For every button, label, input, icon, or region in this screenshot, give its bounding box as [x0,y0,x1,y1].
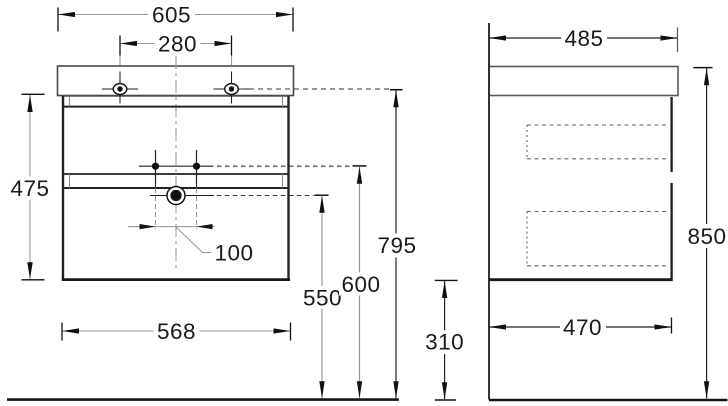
technical-drawing-canvas: 605 280 475 [0,0,728,406]
dim-supply-height-label: 600 [341,272,380,297]
supply-hole-right [193,163,200,170]
side-view: 485 850 470 310 [424,23,728,400]
dim-top-depth-label: 485 [564,26,603,51]
dim-top-depth: 485 [489,26,678,52]
leader-line [176,227,211,253]
dim-drain-height-label: 550 [303,285,342,310]
washbasin-top-side [489,67,678,96]
dim-washbasin-width: 605 [58,3,293,32]
dim-floor-clearance: 310 [424,280,466,400]
dim-cabinet-depth: 470 [489,315,672,340]
vanity-drawing: 605 280 475 [0,0,728,406]
cabinet-side [489,97,673,280]
dim-cabinet-height-label: 475 [10,176,49,201]
supply-hole-left [152,163,159,170]
dim-cabinet-depth-label: 470 [563,315,602,340]
dim-overall-height-label: 850 [687,224,726,249]
dim-washbasin-width-label: 605 [152,3,191,28]
dim-supply-height: 600 [339,167,383,398]
dim-drain-height: 550 [300,196,344,398]
front-view: 605 280 475 [7,3,419,400]
dim-overall-height: 850 [685,68,728,399]
dim-drain-offset-label: 100 [215,241,254,266]
dim-rim-height: 795 [376,90,419,398]
dim-drain-offset: 100 [128,224,254,266]
dim-rim-height-label: 795 [377,233,416,258]
dim-cabinet-width-label: 568 [157,319,196,344]
dim-faucet-spacing-label: 280 [158,32,197,57]
dim-cabinet-height: 475 [8,94,52,279]
drain-icon [150,187,214,205]
reference-levels [217,89,403,196]
hidden-drawer-lower [527,212,668,266]
dim-cabinet-width: 568 [62,319,291,344]
dim-floor-clearance-label: 310 [425,329,464,354]
hidden-drawer-upper [527,125,668,159]
